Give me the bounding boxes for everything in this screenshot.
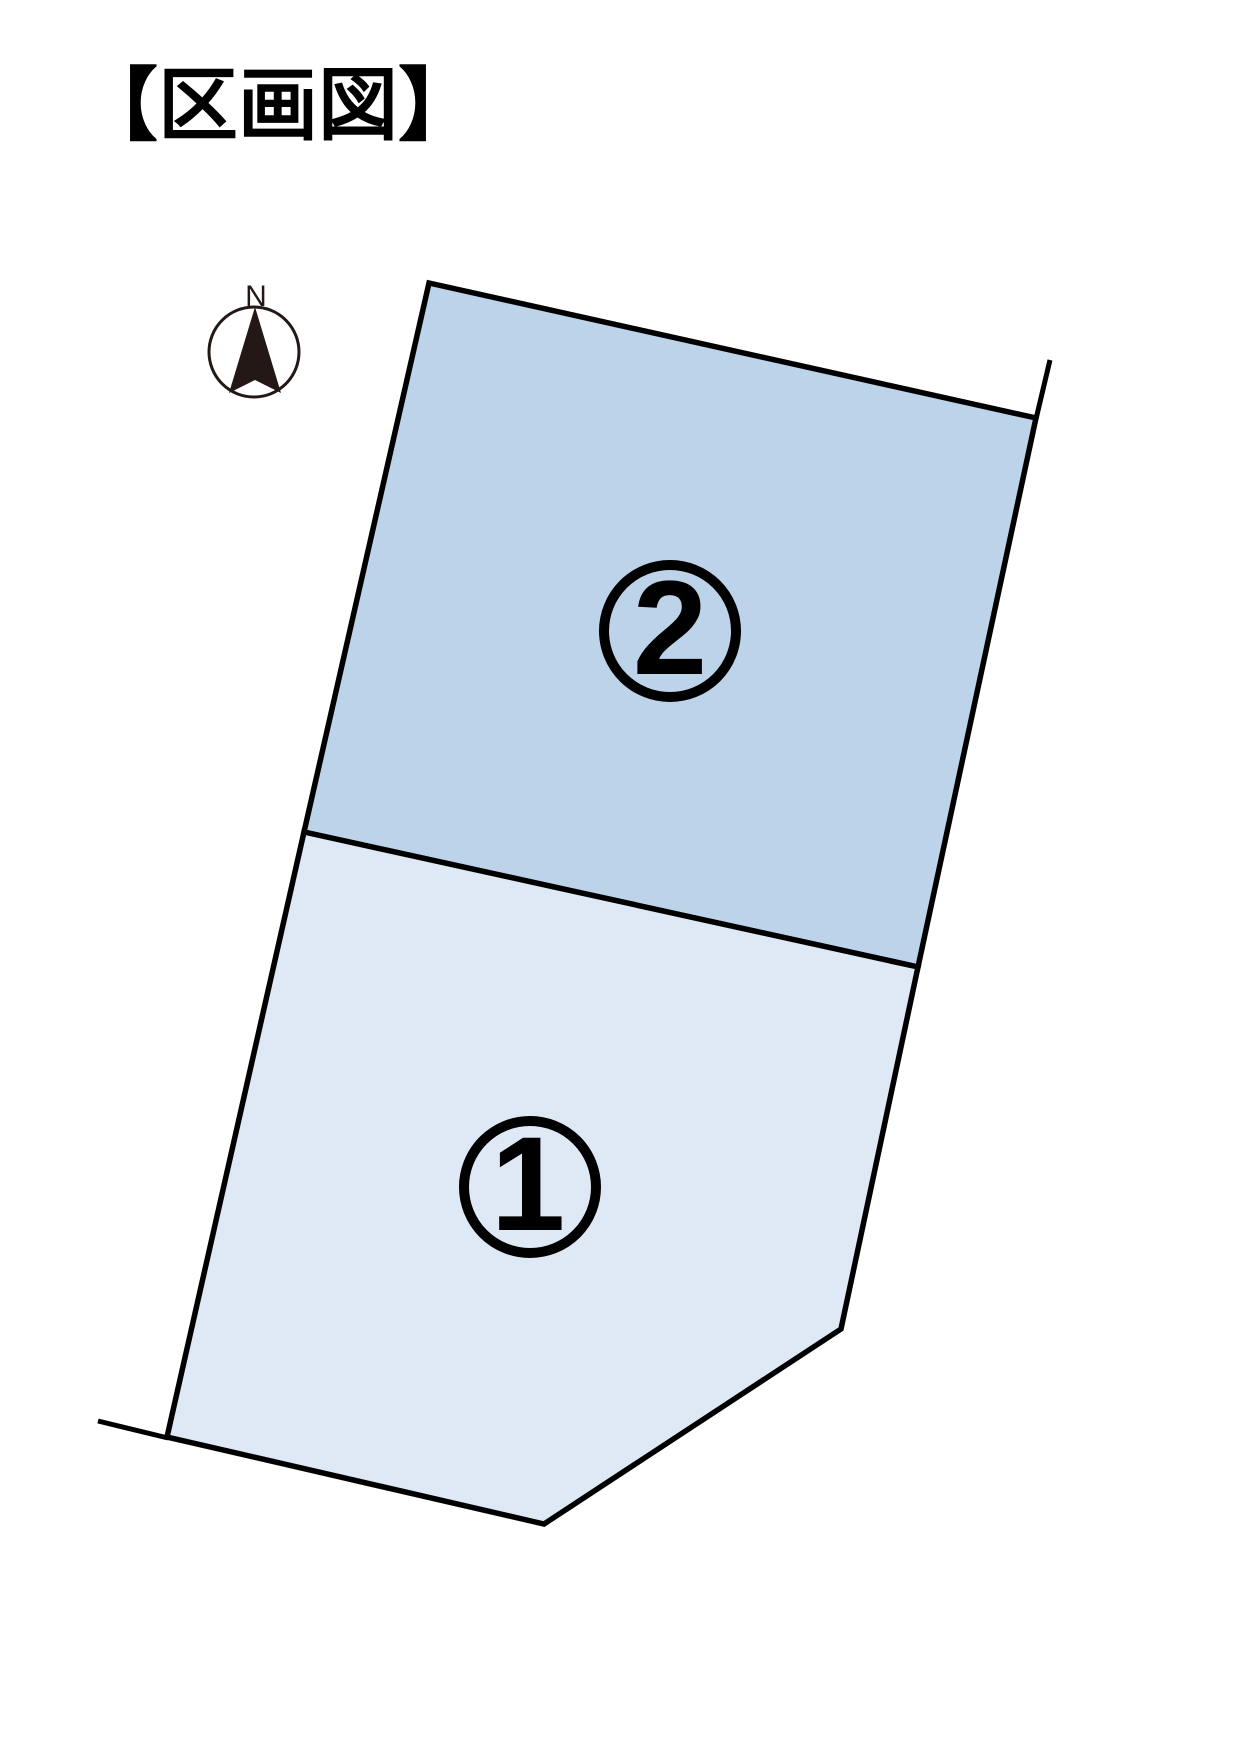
boundary-extension-line-top-right [1036, 360, 1050, 419]
compass-north-label: N [245, 280, 267, 313]
lot-division-map: N 2 1 [0, 0, 1240, 1754]
parcel-1-number: 1 [491, 1110, 566, 1259]
compass: N [209, 280, 299, 397]
page-container: 【区画図】 N 2 1 [0, 0, 1240, 1754]
boundary-extension-line-bottom-left [98, 1421, 168, 1438]
parcel-2-number: 2 [633, 554, 708, 703]
